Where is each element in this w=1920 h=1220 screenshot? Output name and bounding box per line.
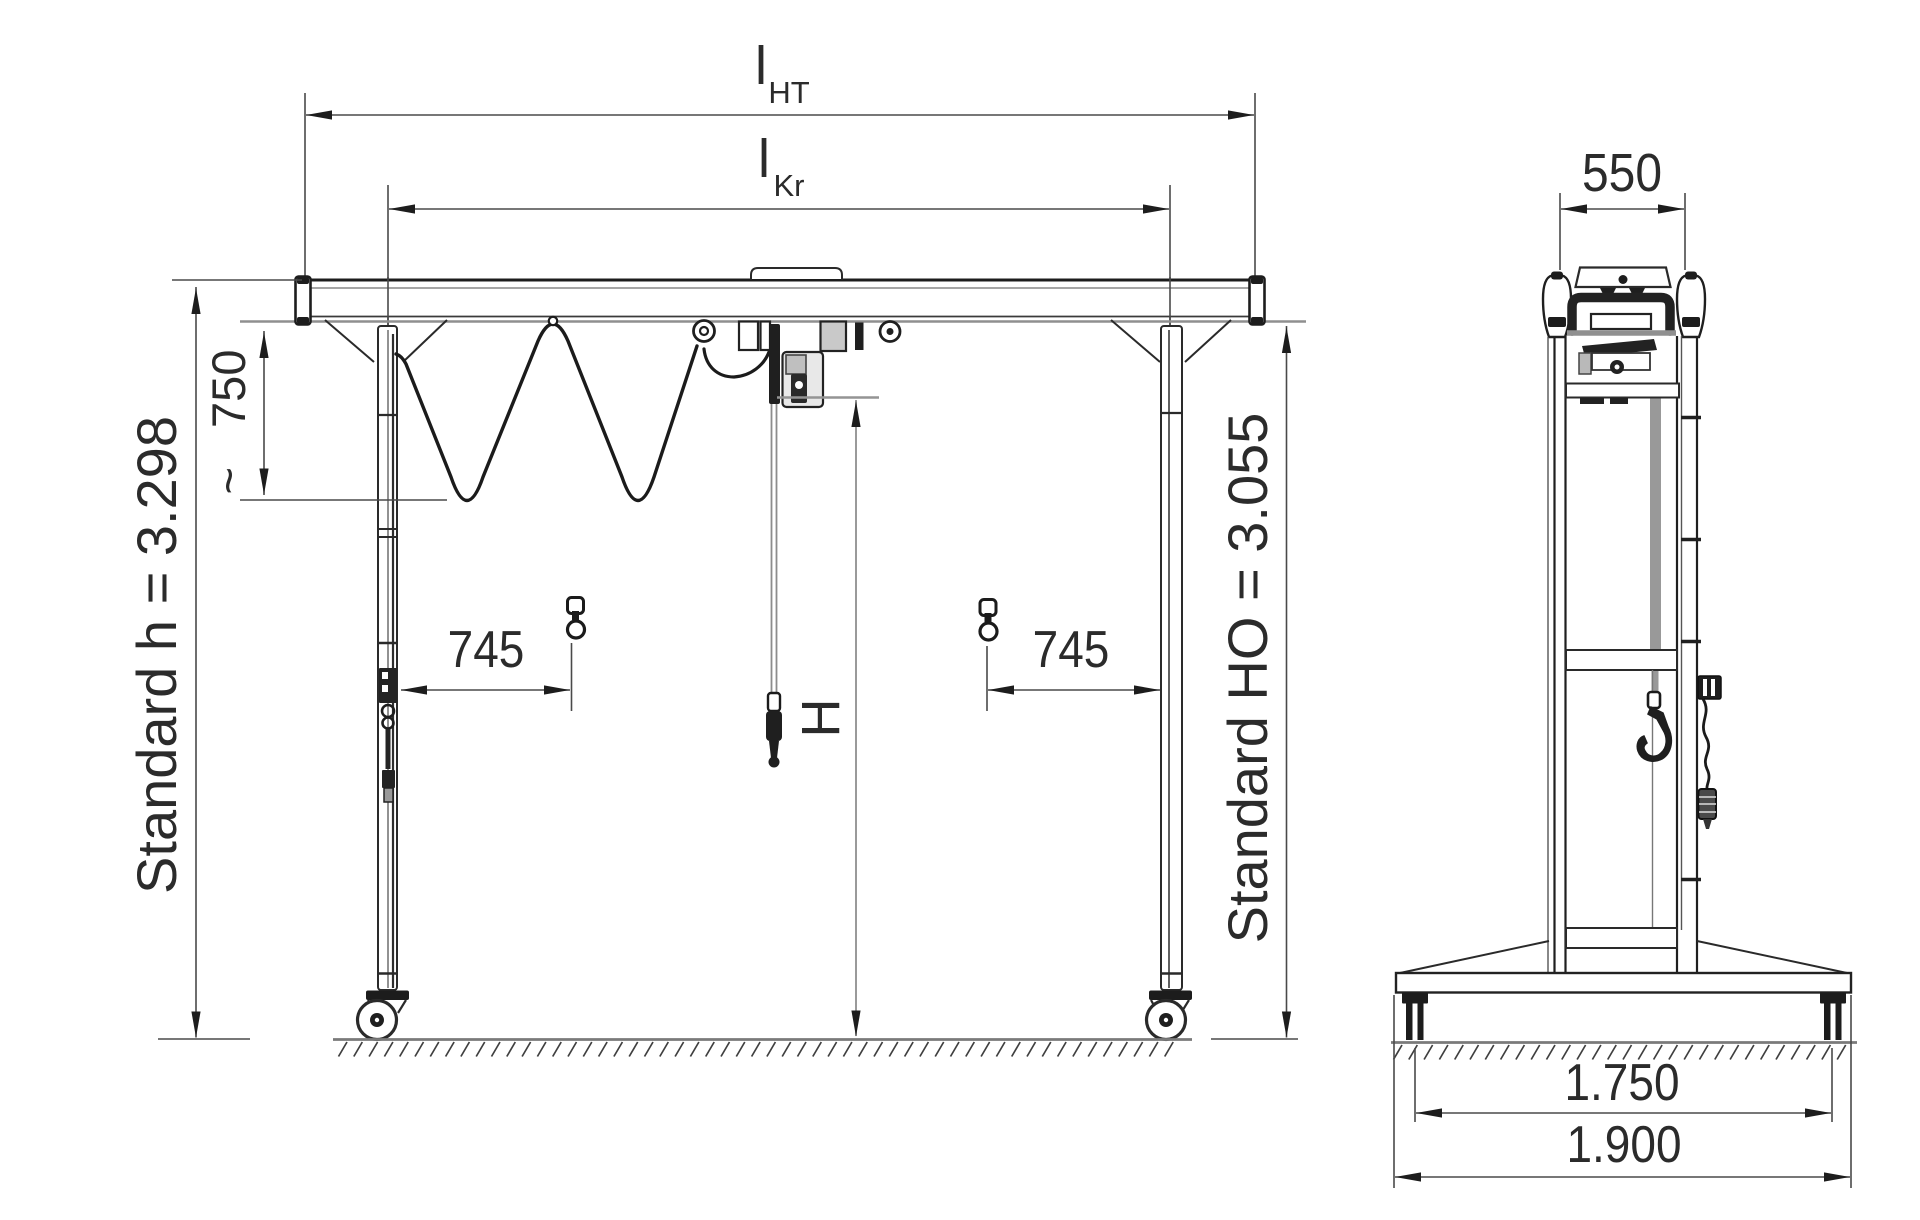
svg-text:Kr: Kr [774, 168, 805, 203]
svg-text:~ 750: ~ 750 [202, 350, 255, 495]
svg-text:1.750: 1.750 [1564, 1054, 1679, 1111]
svg-text:Standard h = 3.298: Standard h = 3.298 [125, 416, 188, 894]
svg-text:745: 745 [448, 621, 525, 678]
svg-text:l: l [755, 36, 767, 96]
svg-text:1.900: 1.900 [1566, 1116, 1681, 1173]
svg-text:l: l [758, 129, 770, 189]
svg-text:HT: HT [768, 75, 809, 110]
svg-text:Standard HO = 3.055: Standard HO = 3.055 [1216, 413, 1279, 944]
svg-text:H: H [791, 699, 851, 738]
svg-text:745: 745 [1033, 621, 1110, 678]
svg-text:550: 550 [1582, 142, 1662, 202]
